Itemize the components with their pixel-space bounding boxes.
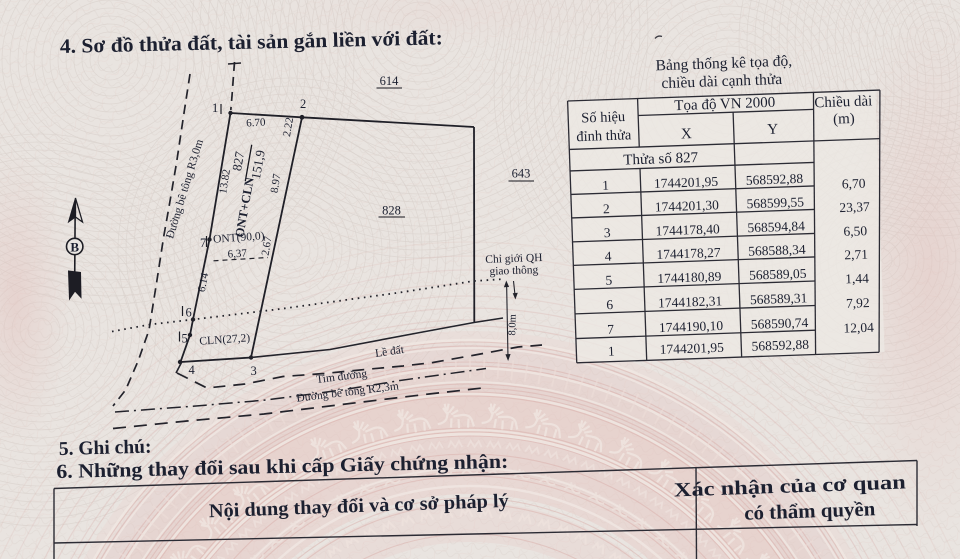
svg-text:3: 3 bbox=[604, 225, 612, 240]
svg-text:643: 643 bbox=[512, 167, 531, 181]
svg-text:Chiều dài: Chiều dài bbox=[814, 93, 872, 111]
svg-text:X: X bbox=[681, 126, 693, 142]
svg-text:1: 1 bbox=[212, 101, 218, 115]
svg-text:Số hiệu: Số hiệu bbox=[581, 109, 625, 127]
svg-text:Y: Y bbox=[767, 122, 779, 138]
svg-text:568592,88: 568592,88 bbox=[751, 337, 809, 354]
svg-text:1744182,31: 1744182,31 bbox=[658, 293, 723, 310]
svg-text:7: 7 bbox=[200, 236, 206, 250]
svg-text:568588,34: 568588,34 bbox=[748, 242, 806, 259]
svg-text:568589,05: 568589,05 bbox=[749, 266, 807, 283]
svg-text:3: 3 bbox=[251, 364, 257, 378]
svg-text:7: 7 bbox=[607, 322, 615, 337]
svg-text:1: 1 bbox=[602, 178, 609, 193]
svg-text:568594,84: 568594,84 bbox=[747, 218, 805, 235]
svg-text:(m): (m) bbox=[833, 111, 855, 128]
svg-text:1744201,30: 1744201,30 bbox=[655, 197, 720, 214]
svg-text:1744190,10: 1744190,10 bbox=[659, 318, 724, 335]
svg-text:6.70: 6.70 bbox=[246, 116, 266, 129]
svg-text:1744201,95: 1744201,95 bbox=[654, 174, 719, 191]
svg-text:có thẩm quyền: có thẩm quyền bbox=[744, 498, 876, 525]
svg-text:2: 2 bbox=[300, 97, 306, 111]
svg-text:B: B bbox=[70, 240, 79, 255]
svg-text:Thửa số 827: Thửa số 827 bbox=[623, 150, 699, 169]
svg-text:568599,55: 568599,55 bbox=[746, 194, 804, 211]
svg-text:giao thông: giao thông bbox=[489, 264, 539, 278]
svg-text:4: 4 bbox=[189, 363, 196, 377]
svg-text:1: 1 bbox=[608, 343, 615, 358]
svg-text:5: 5 bbox=[605, 273, 613, 288]
svg-text:1744201,95: 1744201,95 bbox=[660, 340, 725, 357]
svg-text:1744180,89: 1744180,89 bbox=[657, 269, 722, 286]
svg-text:568592,88: 568592,88 bbox=[746, 171, 804, 188]
svg-text:828: 828 bbox=[382, 204, 401, 218]
svg-text:568590,74: 568590,74 bbox=[751, 315, 809, 332]
svg-text:1,44: 1,44 bbox=[845, 271, 869, 287]
svg-text:1744178,27: 1744178,27 bbox=[656, 245, 721, 262]
svg-text:5: 5 bbox=[182, 332, 188, 346]
svg-text:5. Ghi chú:: 5. Ghi chú: bbox=[59, 437, 152, 460]
svg-text:2: 2 bbox=[603, 201, 610, 216]
svg-text:614: 614 bbox=[380, 74, 400, 88]
svg-text:2,71: 2,71 bbox=[844, 247, 868, 263]
svg-text:12,04: 12,04 bbox=[843, 320, 874, 336]
svg-text:6: 6 bbox=[186, 306, 192, 320]
svg-text:568589,31: 568589,31 bbox=[750, 290, 808, 307]
svg-text:1744178,40: 1744178,40 bbox=[655, 221, 720, 238]
svg-text:4: 4 bbox=[604, 249, 612, 264]
svg-text:7,92: 7,92 bbox=[846, 295, 870, 311]
svg-text:6,50: 6,50 bbox=[843, 223, 867, 239]
svg-text:đỉnh thửa: đỉnh thửa bbox=[576, 127, 632, 145]
svg-text:6,70: 6,70 bbox=[842, 176, 866, 192]
svg-text:6: 6 bbox=[606, 297, 614, 312]
svg-text:23,37: 23,37 bbox=[839, 199, 870, 215]
svg-text:8,0m: 8,0m bbox=[507, 314, 519, 336]
